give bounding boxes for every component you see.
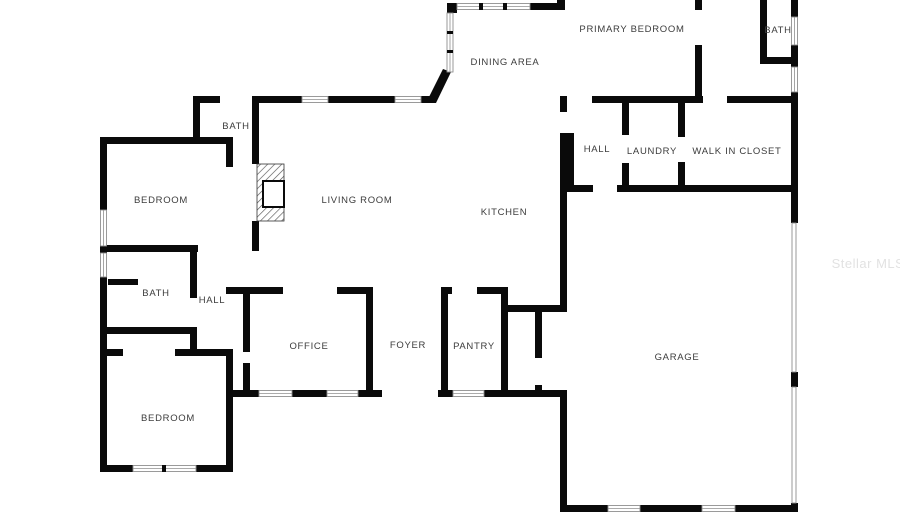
floor-plan-page: DINING AREA PRIMARY BEDROOM BATH BATH BE… — [0, 0, 900, 529]
stellar-mls-watermark: Stellar MLS — [832, 256, 900, 271]
room-label-bedroom-upper: BEDROOM — [134, 195, 188, 206]
background — [0, 0, 900, 529]
room-label-dining-area: DINING AREA — [471, 57, 540, 68]
room-label-bedroom-lower: BEDROOM — [141, 413, 195, 424]
room-label-kitchen: KITCHEN — [481, 207, 528, 218]
room-label-garage: GARAGE — [655, 352, 700, 363]
fireplace — [257, 164, 284, 221]
room-label-bath-top-left: BATH — [222, 121, 249, 132]
room-label-bath-lower: BATH — [142, 288, 169, 299]
room-label-foyer: FOYER — [390, 340, 426, 351]
floor-plan: DINING AREA PRIMARY BEDROOM BATH BATH BE… — [0, 0, 900, 529]
room-label-living-room: LIVING ROOM — [321, 195, 392, 206]
room-label-walk-in-closet: WALK IN CLOSET — [692, 146, 781, 157]
room-label-laundry: LAUNDRY — [627, 146, 677, 157]
room-label-primary-bedroom: PRIMARY BEDROOM — [579, 24, 684, 35]
room-label-hall-lower: HALL — [199, 295, 226, 306]
room-label-hall-upper: HALL — [584, 144, 611, 155]
room-label-office: OFFICE — [289, 341, 328, 352]
room-label-pantry: PANTRY — [453, 341, 495, 352]
room-label-bath-top-right: BATH — [764, 25, 791, 36]
